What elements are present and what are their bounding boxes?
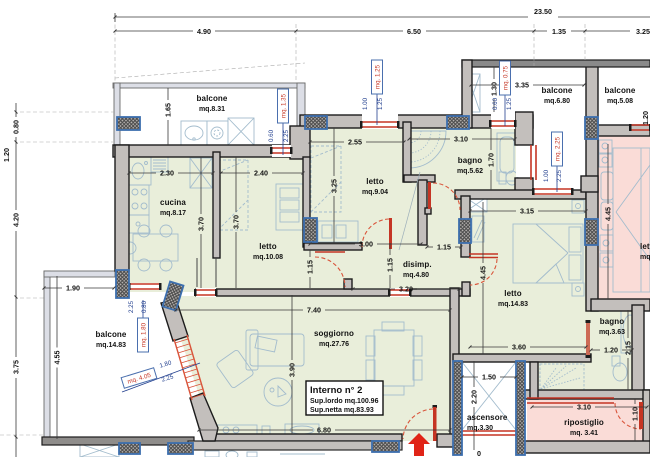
svg-text:mq.3.30: mq.3.30 bbox=[467, 425, 493, 432]
svg-text:0.80: 0.80 bbox=[12, 120, 21, 134]
svg-text:mq. 1.80: mq. 1.80 bbox=[140, 322, 147, 347]
svg-text:3.75: 3.75 bbox=[12, 360, 21, 374]
svg-text:Interno n° 2: Interno n° 2 bbox=[310, 385, 362, 396]
svg-text:ascensore: ascensore bbox=[467, 413, 508, 422]
svg-text:mq.5.62: mq.5.62 bbox=[457, 168, 483, 175]
svg-text:mq.10.08: mq.10.08 bbox=[253, 254, 283, 261]
svg-text:4.20: 4.20 bbox=[12, 213, 21, 227]
svg-text:1.20: 1.20 bbox=[604, 346, 618, 355]
svg-text:mq.14.83: mq.14.83 bbox=[96, 342, 126, 349]
svg-text:1.15: 1.15 bbox=[437, 243, 451, 252]
svg-text:2.30: 2.30 bbox=[160, 169, 174, 178]
svg-text:3.25: 3.25 bbox=[330, 179, 339, 193]
svg-text:balcone: balcone bbox=[605, 86, 636, 95]
svg-text:2.40: 2.40 bbox=[254, 169, 268, 178]
svg-text:1.35: 1.35 bbox=[552, 27, 566, 36]
svg-text:mq.9.04: mq.9.04 bbox=[362, 189, 388, 196]
svg-text:0: 0 bbox=[477, 449, 481, 457]
svg-text:letto: letto bbox=[259, 242, 276, 251]
svg-text:0.60: 0.60 bbox=[492, 97, 499, 110]
svg-text:7.40: 7.40 bbox=[307, 306, 321, 315]
svg-text:1.25: 1.25 bbox=[506, 97, 513, 110]
svg-text:letto: letto bbox=[504, 289, 521, 298]
svg-text:1.00: 1.00 bbox=[543, 169, 550, 182]
svg-text:4.90: 4.90 bbox=[197, 27, 211, 36]
svg-text:mq.27.76: mq.27.76 bbox=[319, 341, 349, 348]
svg-text:1.25: 1.25 bbox=[377, 97, 384, 110]
svg-text:1.90: 1.90 bbox=[66, 284, 80, 293]
svg-text:2.20: 2.20 bbox=[470, 390, 479, 404]
svg-text:mq. 1.35: mq. 1.35 bbox=[280, 93, 287, 118]
svg-text:mq.6.80: mq.6.80 bbox=[544, 98, 570, 105]
svg-text:Sup.netta mq.83.93: Sup.netta mq.83.93 bbox=[310, 407, 374, 414]
svg-text:2.25: 2.25 bbox=[283, 129, 290, 142]
svg-text:3.20: 3.20 bbox=[399, 285, 413, 294]
svg-text:balcone: balcone bbox=[96, 330, 127, 339]
svg-text:0.60: 0.60 bbox=[268, 129, 275, 142]
svg-text:6.80: 6.80 bbox=[317, 426, 331, 435]
svg-text:balcone: balcone bbox=[542, 86, 573, 95]
svg-text:3.00: 3.00 bbox=[359, 240, 373, 249]
svg-text:bagno: bagno bbox=[600, 317, 625, 326]
svg-text:2.25: 2.25 bbox=[556, 169, 563, 182]
svg-text:cucina: cucina bbox=[160, 198, 186, 207]
svg-text:Sup.lordo mq.100.96: Sup.lordo mq.100.96 bbox=[310, 398, 379, 405]
svg-text:1.30: 1.30 bbox=[490, 82, 499, 96]
svg-text:letto: letto bbox=[640, 242, 650, 251]
svg-text:1.20: 1.20 bbox=[2, 148, 11, 162]
svg-text:3.90: 3.90 bbox=[288, 363, 297, 377]
svg-text:mq. 2.25: mq. 2.25 bbox=[554, 136, 561, 161]
svg-text:1.00: 1.00 bbox=[362, 97, 369, 110]
svg-text:mq. 3.41: mq. 3.41 bbox=[570, 430, 598, 437]
svg-text:bagno: bagno bbox=[458, 156, 483, 165]
svg-text:mq.4.80: mq.4.80 bbox=[403, 272, 429, 279]
svg-text:2.25: 2.25 bbox=[128, 300, 135, 313]
svg-text:mq.8.31: mq.8.31 bbox=[199, 106, 225, 113]
svg-text:mq.8.17: mq.8.17 bbox=[160, 210, 186, 217]
svg-text:2.15: 2.15 bbox=[624, 341, 633, 355]
svg-text:letto: letto bbox=[366, 177, 383, 186]
svg-text:ripostiglio: ripostiglio bbox=[564, 418, 604, 427]
svg-text:3.70: 3.70 bbox=[197, 217, 206, 231]
svg-text:3.10: 3.10 bbox=[577, 403, 591, 412]
svg-text:4.45: 4.45 bbox=[479, 266, 488, 280]
svg-text:4.55: 4.55 bbox=[53, 351, 62, 365]
svg-text:mq. 0.75: mq. 0.75 bbox=[502, 65, 509, 90]
svg-text:6.50: 6.50 bbox=[407, 27, 421, 36]
svg-text:1.65: 1.65 bbox=[164, 103, 173, 117]
svg-text:disimp.: disimp. bbox=[403, 260, 432, 269]
svg-text:mq.: mq. bbox=[640, 254, 650, 261]
svg-text:3.15: 3.15 bbox=[520, 207, 534, 216]
svg-text:3.60: 3.60 bbox=[512, 343, 526, 352]
svg-text:3.35: 3.35 bbox=[515, 81, 529, 90]
svg-text:mq.3.63: mq.3.63 bbox=[599, 329, 625, 336]
svg-text:1.20: 1.20 bbox=[641, 111, 650, 125]
svg-text:balcone: balcone bbox=[197, 94, 228, 103]
svg-text:23.50: 23.50 bbox=[534, 7, 552, 16]
svg-text:1.15: 1.15 bbox=[306, 260, 315, 274]
svg-text:mq.5.08: mq.5.08 bbox=[607, 98, 633, 105]
svg-text:1.10: 1.10 bbox=[631, 407, 640, 421]
svg-text:mq. 1.25: mq. 1.25 bbox=[374, 64, 381, 89]
svg-text:1.15: 1.15 bbox=[386, 258, 395, 272]
svg-text:1.50: 1.50 bbox=[482, 373, 496, 382]
svg-text:3.10: 3.10 bbox=[454, 135, 468, 144]
svg-text:0.80: 0.80 bbox=[141, 300, 148, 313]
svg-text:3.70: 3.70 bbox=[232, 215, 241, 229]
svg-text:2.55: 2.55 bbox=[348, 138, 362, 147]
svg-text:1.70: 1.70 bbox=[487, 153, 496, 167]
svg-text:soggiorno: soggiorno bbox=[314, 329, 354, 338]
svg-text:4.45: 4.45 bbox=[604, 207, 613, 221]
svg-text:mq.14.83: mq.14.83 bbox=[498, 301, 528, 308]
svg-text:3.25: 3.25 bbox=[636, 27, 650, 36]
